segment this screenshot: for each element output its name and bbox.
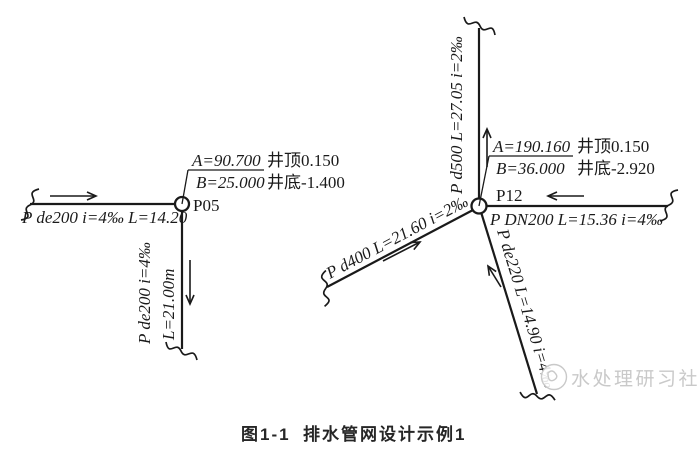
annotation-p05-line-b: B=25.000井底-1.400 bbox=[196, 173, 345, 192]
annotation-p12-line-b: B=36.000井底-2.920 bbox=[496, 159, 655, 178]
diagram-canvas: P de200 i=4‰ L=14.20 P de200 i=4‰ L=21.0… bbox=[0, 0, 698, 453]
manhole-p05-id: P05 bbox=[193, 196, 219, 215]
watermark: 水处理研习社 bbox=[542, 365, 698, 391]
watermark-logo-detail-icon bbox=[548, 371, 557, 381]
drainage-network-diagram: P de200 i=4‰ L=14.20 P de200 i=4‰ L=21.0… bbox=[0, 0, 698, 453]
annotation-leader-p12 bbox=[479, 156, 489, 206]
pipe-p12-southwest-label: P d400 L=21.60 i=2‰ bbox=[322, 192, 471, 283]
pipe-p05-west-label: P de200 i=4‰ L=14.20 bbox=[21, 208, 188, 227]
figure-title: 排水管网设计示例1 bbox=[303, 424, 466, 444]
pipe-p12-east-label: P DN200 L=15.36 i=4‰ bbox=[489, 210, 663, 229]
pipe-p12-southwest bbox=[327, 210, 473, 287]
figure-caption: 图1-1 排水管网设计示例1 bbox=[241, 424, 466, 444]
watermark-brand-text: 水处理研习社 bbox=[571, 368, 698, 390]
pipe-p12-north-label: P d500 L=27.05 i=2‰ bbox=[447, 36, 466, 195]
annotation-p05-line-a: A=90.700井顶0.150 bbox=[191, 151, 339, 170]
pipe-p05-south-length-label: L=21.00m bbox=[159, 269, 178, 341]
annotation-p12-line-a: A=190.160井顶0.150 bbox=[492, 137, 649, 156]
pipe-p05-south-spec-label: P de200 i=4‰ bbox=[135, 242, 154, 345]
manhole-p12-id: P12 bbox=[496, 186, 522, 205]
figure-number: 图1-1 bbox=[241, 425, 291, 444]
